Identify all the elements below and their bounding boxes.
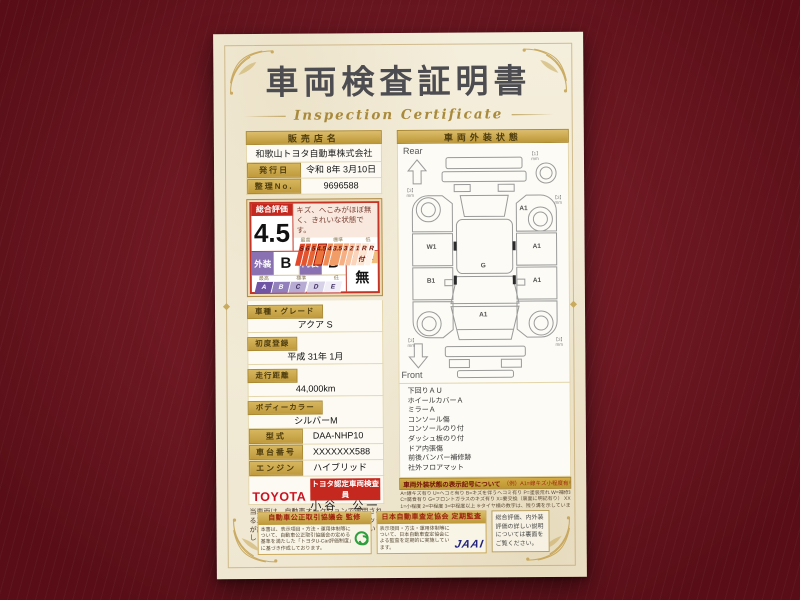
legend-title: 車両外装状態の表示記号について — [403, 478, 500, 489]
mark-left-rear-door: B1 — [427, 278, 435, 285]
legend-details: A=線キズ有り U=ヘコミ有り B=キズを伴うヘコミ有り P=塗装荒れ W=補修… — [399, 489, 571, 511]
exterior-condition-header: 車両外装状態 — [397, 129, 569, 144]
see-back-note: 総合評価、内外装評価の詳しい説明については裏面をご覧ください。 — [491, 510, 549, 553]
appraisal-institute-box: 日本自動車査定協会 定期監査 表示項目・方法・運用体制等について、日本自動車査定… — [376, 510, 486, 554]
field-model-code: 型式 DAA-NHP10 — [248, 428, 384, 445]
ref-no-value: 9696588 — [301, 178, 381, 194]
field-value: XXXXXXX588 — [303, 444, 383, 460]
ref-no-label: 整理No. — [247, 179, 301, 194]
field-first-registration: 初度登録 平成 31年 1月 — [247, 332, 383, 365]
certificate-subtitle: Inspection Certificate — [294, 106, 504, 123]
field-label: 車台番号 — [249, 445, 303, 460]
front-right-tread-depth: 【3】 mm — [548, 337, 570, 347]
toyota-logo: TOYOTA — [252, 489, 310, 503]
issue-date-label: 発行日 — [247, 163, 301, 178]
legend-example: （例）A1=線キズ小程度有り — [504, 479, 572, 487]
overall-rating-score: 4.5 — [251, 216, 292, 251]
grade-cell: E — [323, 281, 343, 292]
field-value: 44,000km — [249, 382, 383, 396]
car-diagram: Rear Front 【1】 mm 【3】 mm 【3】 mm 【3】 mm — [397, 143, 571, 384]
mark-hood: A1 — [479, 311, 487, 318]
field-label: 車種・グレード — [247, 305, 323, 320]
front-label: Front — [401, 370, 422, 380]
fair-trade-council-text: 本書は、表示項目・方法・運用体制等について、自動車公正取引協議会の定める基準を満… — [261, 526, 353, 551]
jaai-logo: JAAI — [454, 539, 485, 550]
ref-no-row: 整理No. 9696588 — [246, 178, 382, 195]
rating-box: 総合評価 4.5 キズ、へこみがほぼ無く、きれいな状態です。 最高 標準 低 — [246, 198, 383, 297]
appraisal-institute-text: 表示項目・方法・運用体制等について、日本自動車査定協会による監査を定期的に実施し… — [380, 526, 453, 551]
certified-inspector-badge: トヨタ認定車両検査員 — [310, 478, 380, 500]
repair-history-value: 無 — [347, 263, 378, 291]
front-left-tread-depth: 【3】 mm — [400, 338, 422, 348]
fair-trade-council-title: 自動車公正取引協議会 監修 — [258, 512, 370, 525]
spare-tread-depth: 【1】 mm — [524, 151, 546, 161]
right-column: 車両外装状態 — [397, 129, 572, 511]
field-mileage: 走行距離 44,000km — [247, 364, 383, 397]
field-value: DAA-NHP10 — [303, 428, 383, 444]
appraisal-institute-title: 日本自動車査定協会 定期監査 — [377, 511, 485, 524]
mark-right-front-door: A1 — [533, 243, 541, 250]
mark-roof: G — [481, 262, 486, 269]
footer: 自動車公正取引協議会 監修 本書は、表示項目・方法・運用体制等について、自動車公… — [257, 510, 549, 555]
mark-right-fender: A1 — [519, 205, 527, 212]
field-label: エンジン — [249, 461, 303, 476]
rear-label: Rear — [403, 146, 423, 156]
rear-left-tread-depth: 【3】 mm — [399, 188, 421, 198]
field-engine: エンジン ハイブリッド — [248, 460, 384, 477]
field-value: アクア S — [248, 318, 382, 332]
field-value: シルバーM — [249, 414, 383, 428]
field-label: 型式 — [249, 429, 303, 444]
field-label: ボディーカラー — [248, 401, 323, 416]
condition-list: 下回りＡＵ ホイールカバーＡ ミラーＡ コンソール傷 コンソールのり付 ダッシュ… — [399, 383, 572, 478]
rear-right-tread-depth: 【3】 mm — [547, 195, 569, 205]
condition-item: 社外フロアマット — [408, 463, 562, 474]
photo-background: 車両検査証明書 Inspection Certificate 販売店名 和歌山ト… — [0, 0, 800, 600]
field-body-color: ボディーカラー シルバーM — [248, 396, 384, 429]
field-label: 初度登録 — [247, 337, 297, 351]
exterior-label: 外装 — [252, 252, 274, 275]
field-value: 平成 31年 1月 — [248, 350, 382, 364]
mark-right-rear-door: A1 — [533, 277, 541, 284]
field-label: 走行距離 — [247, 369, 297, 383]
subtitle-row: Inspection Certificate — [214, 106, 584, 125]
inspector-block: TOYOTA トヨタ認定車両検査員 小谷 公一 — [248, 476, 384, 505]
overall-rating-header: 総合評価 — [251, 204, 292, 216]
field-value: ハイブリッド — [303, 460, 383, 476]
fair-trade-logo-icon — [355, 532, 369, 546]
rating-scale: 最高 標準 低 S 6 5 4.5 4 3. — [294, 237, 378, 267]
dealer-name: 和歌山トヨタ自動車株式会社 — [246, 144, 382, 163]
rating-comment: キズ、へこみがほぼ無く、きれいな状態です。 — [293, 203, 377, 238]
mark-left-front-door: W1 — [427, 244, 437, 251]
dealer-header: 販売店名 — [246, 130, 382, 145]
grade-scale: 最高 標準 低 A B C D E — [252, 275, 346, 293]
fair-trade-council-box: 自動車公正取引協議会 監修 本書は、表示項目・方法・運用体制等について、自動車公… — [257, 511, 371, 555]
issue-date-value: 令和 8年 3月10日 — [301, 162, 381, 178]
certificate-paper: 車両検査証明書 Inspection Certificate 販売店名 和歌山ト… — [213, 32, 587, 580]
field-chassis-no: 車台番号 XXXXXXX588 — [248, 444, 384, 461]
side-ornament-icon — [223, 303, 230, 310]
left-column: 販売店名 和歌山トヨタ自動車株式会社 発行日 令和 8年 3月10日 整理No.… — [246, 130, 385, 544]
subtitle-flourish-right — [511, 113, 553, 114]
subtitle-flourish-left — [244, 115, 286, 116]
certificate-title: 車両検査証明書 — [213, 54, 583, 105]
vehicle-details: 車種・グレード アクア S 初度登録 平成 31年 1月 走行距離 44,000… — [247, 300, 384, 477]
field-model-grade: 車種・グレード アクア S — [247, 300, 383, 333]
issue-date-row: 発行日 令和 8年 3月10日 — [246, 162, 382, 179]
